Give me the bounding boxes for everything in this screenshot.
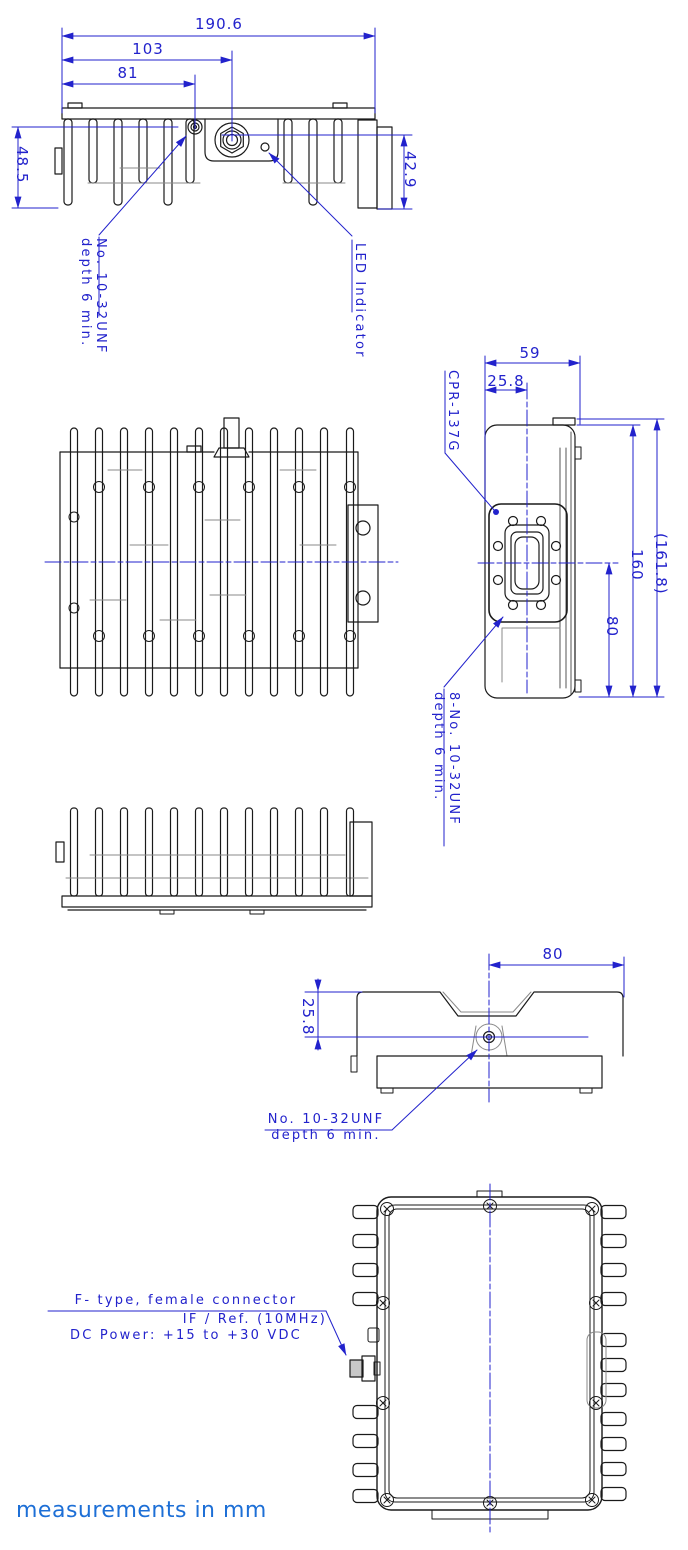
screw-note-line1: No. 10-32UNF <box>93 238 108 355</box>
dim-end-center-to-edge: 80 <box>528 945 578 963</box>
top-view-fins <box>64 119 342 205</box>
led-note: LED Indicator <box>352 243 367 359</box>
fin-side-view-drawing <box>56 808 372 914</box>
screw-note-leader <box>99 136 186 316</box>
side-view-dimensions <box>444 356 664 846</box>
waveguide-stud <box>187 418 249 457</box>
front-view-drawing <box>60 418 378 696</box>
dim-height-left: 48.5 <box>13 146 31 183</box>
bottom-view-fins-right <box>601 1206 626 1501</box>
connector-note-line2: IF / Ref. (10MHz) <box>45 1309 327 1328</box>
led-note-leader <box>269 153 352 312</box>
end-screw-note: No. 10-32UNF depth 6 min. <box>255 1112 397 1144</box>
dim-flange-offset: 25.8 <box>484 372 528 390</box>
end-view-dimensions <box>265 954 624 1130</box>
dim-width-total: 190.6 <box>188 15 250 33</box>
dim-height-right: 42.9 <box>401 151 419 188</box>
dim-center-to-bottom: 80 <box>603 616 621 637</box>
bottom-view-drawing <box>350 1191 626 1519</box>
dim-width-to-screw: 81 <box>105 64 151 82</box>
dim-side-width: 59 <box>505 344 555 362</box>
units-note: measurements in mm <box>16 1498 267 1523</box>
drawing-sheet: 190.6 103 81 48.5 42.9 No. 10-32UNF dept… <box>0 0 688 1550</box>
end-view-drawing <box>351 992 623 1093</box>
connector-note: F- type, female connector IF / Ref. (10M… <box>45 1293 327 1344</box>
flange-screw-note-line2: depth 6 min. <box>431 692 446 826</box>
dim-end-top-to-screw: 25.8 <box>299 998 317 1035</box>
dim-height-overall: (161.8) <box>652 533 670 595</box>
dim-width-to-center: 103 <box>122 40 174 58</box>
side-view-drawing <box>485 418 581 698</box>
dim-height: 160 <box>628 549 646 581</box>
end-screw-note-line1: No. 10-32UNF <box>255 1112 397 1128</box>
flange-label: CPR-137G <box>445 370 460 453</box>
screw-note-line2: depth 6 min. <box>78 238 93 355</box>
led-hole <box>261 143 269 151</box>
flange-screw-note: 8-No. 10-32UNF depth 6 min. <box>431 692 461 826</box>
fin-side-fins <box>71 808 354 896</box>
bottom-view-dimensions <box>48 1184 490 1532</box>
connector-note-line1: F- type, female connector <box>45 1293 327 1309</box>
end-screw-note-line2: depth 6 min. <box>255 1128 397 1144</box>
flange-screw-note-line1: 8-No. 10-32UNF <box>446 692 461 826</box>
bottom-view-fins-left <box>353 1206 378 1503</box>
connector-note-line3: DC Power: +15 to +30 VDC <box>45 1328 327 1344</box>
screw-note: No. 10-32UNF depth 6 min. <box>78 238 108 355</box>
f-connector <box>350 1328 380 1381</box>
top-view-drawing <box>55 103 392 209</box>
